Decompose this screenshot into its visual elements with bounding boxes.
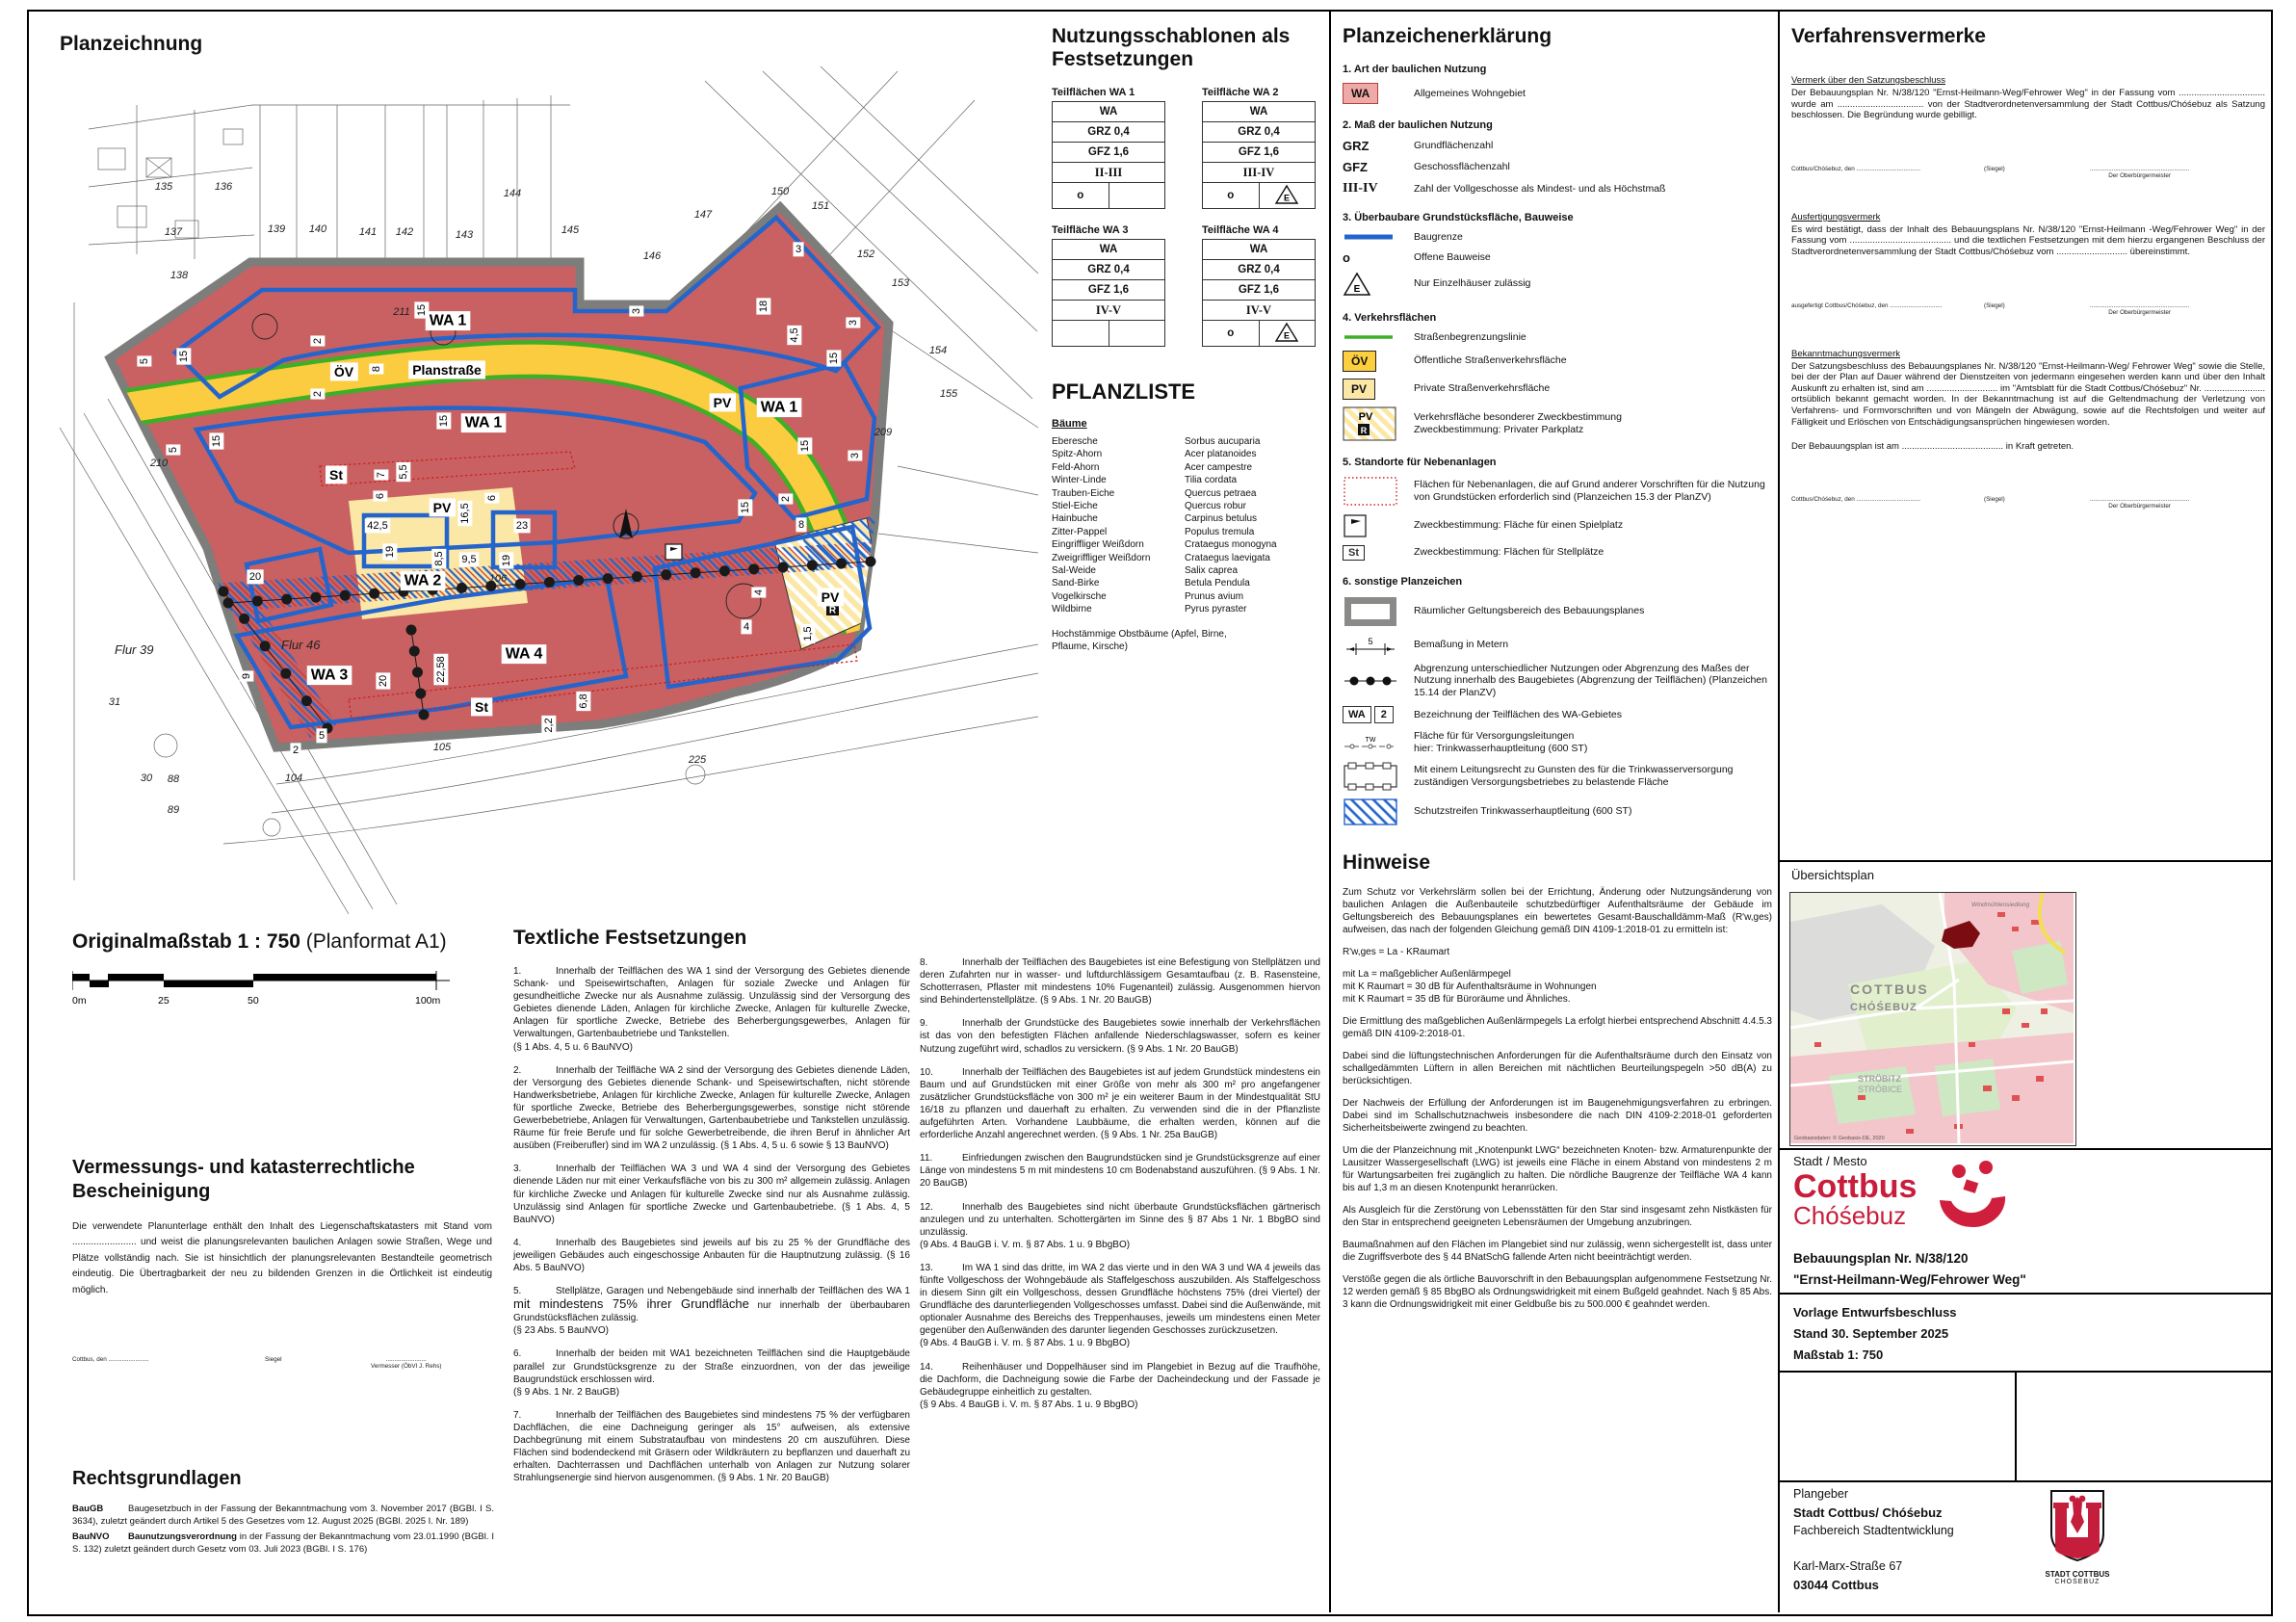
stadt-mesto-label: Stadt / Mesto [1793,1154,1917,1168]
signature-row: ausgefertigt Cottbus/Chóśebuz, den .....… [1791,302,2265,316]
svg-text:2: 2 [780,496,792,502]
schablone-wa3: Teilfläche WA 3WAGRZ 0,4GFZ 1,6IV-V [1052,224,1177,347]
wa-label: WA 1 [757,398,802,417]
verfahrensvermerke-column: Verfahrensvermerke Vermerk über den Satz… [1791,25,2265,542]
green-line-icon [1343,333,1414,341]
red-dotted-rect-icon [1343,476,1414,507]
hinweis-paragraph: mit La = maßgeblicher Außenlärmpegelmit … [1343,968,1772,1006]
tw-line-icon: TW [1343,734,1414,751]
plant-row: Eingriffliger WeißdornCrataegus monogyna [1052,538,1329,551]
svg-text:4: 4 [744,621,749,633]
parcel-number: 144 [504,188,521,199]
svg-text:9: 9 [241,673,252,679]
dimension-label: 6 [373,490,387,501]
svg-text:WA 3: WA 3 [311,667,349,684]
plant-row: WildbirnePyrus pyraster [1052,603,1329,615]
festsetzung-item: 13.Im WA 1 sind das dritte, im WA 2 das … [920,1262,1320,1350]
svg-text:0m: 0m [72,995,87,1007]
verfahren-block: AusfertigungsvermerkEs wird bestätigt, d… [1791,212,2265,316]
svg-text:2: 2 [293,745,299,756]
svg-text:E: E [1284,330,1290,340]
pflanzliste-rows: EberescheSorbus aucupariaSpitz-AhornAcer… [1052,435,1329,616]
wa-chip-icon: WA [1343,83,1414,104]
festsetzung-item: 7.Innerhalb der Teilflächen des Baugebie… [513,1409,910,1485]
wa2-boxes-icon: WA2 [1343,706,1414,723]
parcel-number: 137 [165,226,183,238]
map-city-label: COTTBUS [1850,981,1929,997]
festsetzung-item: 11.Einfriedungen zwischen den Baugrundst… [920,1152,1320,1190]
dimension-label: 7 [374,469,388,480]
nutzungsschablonen-column: Nutzungsschablonen als Festsetzungen Tei… [1052,25,1329,654]
plant-row: Sand-BirkeBetula Pendula [1052,577,1329,589]
vermessung-block: Vermessungs- und katasterrechtliche Besc… [72,1156,492,1402]
spielplatz-icon [665,544,682,560]
svg-text:CHÓŚEBUZ: CHÓŚEBUZ [1850,1001,1918,1013]
svg-text:R: R [1361,426,1368,435]
plant-row: Winter-LindeTilia cordata [1052,474,1329,486]
svg-text:19: 19 [384,546,396,558]
rechtsgrundlagen-title: Rechtsgrundlagen [72,1468,494,1490]
legend-sections: 1. Art der baulichen NutzungWAAllgemeine… [1343,64,1772,826]
spielplatz-icon [1343,513,1414,538]
dimension-label: 15 [826,350,841,366]
svg-text:20: 20 [378,675,389,687]
svg-text:3: 3 [849,453,861,458]
wa-label: WA 1 [461,413,507,432]
svg-text:Planstraße: Planstraße [412,362,482,378]
svg-text:15: 15 [828,353,840,364]
flur-label: Flur 39 [115,642,153,657]
hinweis-paragraph: Um die der Planzeichnung mit „Knotenpunk… [1343,1144,1772,1194]
parcel-number: 150 [771,186,790,197]
area-label: Planstraße [408,360,485,379]
svg-text:WA 2: WA 2 [404,573,442,589]
dimension-label: 15 [414,301,429,318]
dots-line-icon [1343,674,1414,688]
parcel-number: 135 [155,181,173,193]
legend-row: oOffene Bauweise [1343,250,1772,265]
festsetzung-item: 6.Innerhalb der beiden mit WA1 bezeichne… [513,1347,910,1398]
svg-text:5: 5 [319,730,325,742]
divider-h5 [1778,1480,2271,1482]
text-serif-icon: III-IV [1343,181,1414,196]
divider-h4 [1778,1371,2271,1373]
divider-v1 [1329,12,1331,1612]
svg-text:25: 25 [158,995,170,1007]
text-bold-icon: GFZ [1343,160,1414,174]
dim-5-icon: 5 [1343,635,1414,656]
legend-row: PVRVerkehrsfläche besonderer Zweckbestim… [1343,406,1772,441]
svg-text:20: 20 [249,571,261,583]
schablonen-title: Nutzungsschablonen als Festsetzungen [1052,25,1312,71]
parcel-number: 154 [929,345,947,356]
leitungsrecht-icon [1343,762,1414,791]
hinweis-paragraph: Verstöße gegen die als örtliche Bauvorsc… [1343,1273,1772,1311]
svg-text:15: 15 [211,435,222,447]
dimension-label: 20 [247,569,263,584]
svg-text:6: 6 [486,495,498,501]
plant-row: EberescheSorbus aucuparia [1052,435,1329,448]
divider-h3 [1778,1293,2271,1295]
dimension-label: 6,8 [576,692,590,711]
dimension-label: 42,5 [365,518,390,533]
dimension-label: 19 [499,552,513,568]
svg-text:WA 1: WA 1 [465,415,503,432]
legend-row: WA2Bezeichnung der Teilflächen des WA-Ge… [1343,706,1772,723]
svg-text:4,5: 4,5 [789,327,800,342]
dimension-label: 3 [629,305,643,316]
dimension-label: 20 [376,672,390,689]
svg-text:2: 2 [312,391,324,397]
svg-text:WA 1: WA 1 [430,313,467,329]
e-triangle-icon: E [1343,272,1414,297]
legend-column: Planzeichenerklärung 1. Art der bauliche… [1343,25,1772,1321]
svg-text:7: 7 [376,472,387,478]
pflanzliste-title: PFLANZLISTE [1052,379,1329,405]
festsetzung-item: 2.Innerhalb der Teilfläche WA 2 sind der… [513,1064,910,1153]
legend-row: Flächen für Nebenanlagen, die auf Grund … [1343,476,1772,507]
svg-text:15: 15 [740,502,751,513]
dimension-label: 3 [793,242,803,256]
textfest-column-1: 1.Innerhalb der Teilflächen des WA 1 sin… [513,965,910,1495]
dimension-label: 6 [484,492,499,503]
svg-text:STRÓBICE: STRÓBICE [1858,1085,1902,1094]
svg-text:5: 5 [139,358,150,364]
dimension-label: 4 [751,587,766,597]
svg-text:5: 5 [168,447,179,453]
plant-row: Zweigriffliger WeißdornCrataegus laeviga… [1052,552,1329,564]
plan-drawing: R 13513613713813914014114214314414514614… [31,13,1038,917]
svg-text:9,5: 9,5 [461,554,476,565]
oev-chip-icon: ÖV [1343,351,1414,372]
pv-chip-icon: PV [1343,379,1414,400]
pv-hatch-chip-icon: PVR [1343,406,1414,441]
dimension-label: 8 [369,363,383,374]
svg-text:1,5: 1,5 [802,626,814,641]
dimension-label: 19 [382,543,397,560]
rechtsgrundlage-entry: BauGBBaugesetzbuch in der Fassung der Be… [72,1504,494,1528]
parcel-number: 140 [309,223,327,235]
titleblock-plangeber: Plangeber Stadt Cottbus/ Chóśebuz Fachbe… [1793,1485,1954,1594]
svg-text:15: 15 [438,415,450,427]
parcel-number: 142 [396,226,413,238]
parcel-number: 139 [268,223,285,235]
chosebuz-logo-text: Chóśebuz [1793,1203,1917,1228]
parcel-number: 153 [892,277,910,289]
signature-row: Cottbus/Chóśebuz, den ..................… [1791,166,2265,179]
svg-text:23: 23 [516,520,528,532]
festsetzung-item: 4.Innerhalb des Baugebietes sind jeweils… [513,1237,910,1274]
svg-text:3: 3 [848,320,859,326]
schablone-wa4: Teilfläche WA 4WAGRZ 0,4GFZ 1,6IV-VoE [1202,224,1327,347]
plant-row: Feld-AhornAcer campestre [1052,461,1329,474]
legend-section-title: 1. Art der baulichen Nutzung [1343,64,1772,75]
parcel-number: 147 [694,209,713,221]
bplan-number: Bebauungsplan Nr. N/38/120 [1793,1248,2026,1269]
festsetzung-item: 9.Innerhalb der Grundstücke des Baugebie… [920,1017,1320,1055]
svg-text:15: 15 [416,304,428,316]
map-caption: Geobasisdaten: © Geobasis-DE, 2020 [1794,1135,1885,1141]
legend-row: Straßenbegrenzungslinie [1343,331,1772,344]
svg-text:3: 3 [796,244,801,255]
festsetzung-item: 10.Innerhalb der Teilflächen des Baugebi… [920,1066,1320,1142]
svg-text:6: 6 [375,493,386,499]
rechtsgrundlage-entry: BauNVOBaunutzungsverordnung in der Fassu… [72,1531,494,1556]
dimension-label: 15 [738,499,752,515]
svg-text:8,5: 8,5 [433,551,445,565]
hinweis-paragraph: Der Nachweis der Erfüllung der Anforderu… [1343,1097,1772,1135]
hinweis-paragraph: Die Ermittlung des maßgeblichen Außenlär… [1343,1015,1772,1040]
pflanzliste-note: Hochstämmige Obstbäume (Apfel, Birne, Pf… [1052,628,1264,654]
dimension-label: 2 [778,493,793,504]
titleblock-plan-number: Bebauungsplan Nr. N/38/120 "Ernst-Heilma… [1793,1248,2026,1291]
area-label: PV [818,588,844,606]
parcel-number: 30 [141,772,153,784]
legend-row: Mit einem Leitungsrecht zu Gunsten des f… [1343,762,1772,791]
dimension-label: 9,5 [459,552,479,566]
dimension-label: 2 [310,388,325,399]
vorlage-label: Vorlage Entwurfsbeschluss [1793,1302,1957,1323]
legend-row: Räumlicher Geltungsbereich des Bebauungs… [1343,595,1772,628]
rechtsgrundlagen-block: Rechtsgrundlagen BauGBBaugesetzbuch in d… [72,1468,494,1559]
dimension-label: 5 [166,444,180,455]
svg-text:2,2: 2,2 [543,718,555,732]
plant-row: VogelkirschePrunus avium [1052,590,1329,603]
svg-text:19: 19 [501,555,512,566]
hinweise-paragraphs: Zum Schutz vor Verkehrslärm sollen bei d… [1343,886,1772,1311]
svg-text:St: St [329,467,343,483]
coat-of-arms: STADT COTTBUS CHÓŚEBUZ [2034,1489,2121,1585]
dimension-label: 22,58 [433,654,448,686]
area-label: PV [710,393,736,411]
legend-row: GFZGeschossflächenzahl [1343,160,1772,174]
st-box-icon: St [1343,545,1414,561]
svg-text:18: 18 [758,301,770,312]
area-label: PV [430,498,456,516]
flur-label: Flur 46 [281,638,321,652]
legend-row: WAAllgemeines Wohngebiet [1343,83,1772,104]
map-district-label: STRÖBITZ [1858,1074,1901,1084]
uebersichtsplan-label: Übersichtsplan [1791,868,1874,882]
vermessung-text: Die verwendete Planunterlage enthält den… [72,1219,492,1298]
svg-text:PV: PV [714,395,732,410]
scale-bar: 0m 25 50 100m [72,963,486,1011]
festsetzung-item: 14.Reihenhäuser und Doppelhäuser sind im… [920,1361,1320,1411]
parcel-number: 104 [285,772,302,784]
area-label: St [326,465,347,484]
titleblock-status: Vorlage Entwurfsbeschluss Stand 30. Sept… [1793,1302,1957,1366]
dimension-label: 2,2 [541,716,556,735]
verfahren-block: BekanntmachungsvermerkDer Satzungsbeschl… [1791,349,2265,510]
dimension-label: 2 [290,743,300,757]
parcel-number: 106 [489,573,508,585]
parcel-number: 145 [561,224,580,236]
verfahren-block: Vermerk über den SatzungsbeschlussDer Be… [1791,75,2265,179]
festsetzung-item: 3.Innerhalb der Teilflächen WA 3 und WA … [513,1163,910,1225]
festsetzung-item: 12.Innerhalb des Baugebietes sind nicht … [920,1201,1320,1251]
uebersichtsplan-map: COTTBUS CHÓŚEBUZ STRÖBITZ STRÓBICE Windm… [1789,892,2076,1146]
parcel-number: 31 [109,696,120,708]
massstab-label: Maßstab 1: 750 [1793,1345,1957,1366]
svg-text:6,8: 6,8 [578,693,589,708]
plant-row: Stiel-EicheQuercus robur [1052,500,1329,512]
wa-label: WA 2 [401,571,446,590]
dimension-label: 4,5 [787,326,801,345]
area-label: St [471,697,492,716]
wa-label: WA 4 [502,644,547,664]
hinweis-paragraph: Baumaßnahmen auf den Flächen im Plangebi… [1343,1239,1772,1264]
text-bold-icon: GRZ [1343,139,1414,153]
textfest-title: Textliche Festsetzungen [513,927,746,950]
festsetzung-item: 1.Innerhalb der Teilflächen des WA 1 sin… [513,965,910,1054]
schablone-wa1: Teilflächen WA 1WAGRZ 0,4GFZ 1,6II-IIIo [1052,87,1177,209]
parcel-number: 89 [168,804,179,816]
festsetzung-item: 8.Innerhalb der Teilflächen des Baugebie… [920,956,1320,1007]
schablone-wa2: Teilfläche WA 2WAGRZ 0,4GFZ 1,6III-IVoE [1202,87,1327,209]
svg-text:8: 8 [371,366,382,372]
svg-text:50: 50 [248,995,259,1007]
svg-text:PV: PV [1359,411,1373,423]
parcel-number: 136 [215,181,233,193]
plant-row: Spitz-AhornAcer platanoides [1052,448,1329,460]
svg-text:15: 15 [799,440,811,452]
svg-text:5: 5 [1368,637,1372,646]
area-label: ÖV [330,362,358,380]
legend-row: StZweckbestimmung: Flächen für Stellplät… [1343,545,1772,561]
vermessung-signature-row: Cottbus, den ........................ Si… [72,1356,492,1370]
dimension-label: 15 [436,412,451,429]
textfest-column-2: 8.Innerhalb der Teilflächen des Baugebie… [920,956,1320,1422]
svg-text:3: 3 [631,308,642,314]
pflanzliste-subtitle: Bäume [1052,418,1329,430]
wa-label: WA 3 [307,666,352,685]
vermessung-title: Vermessungs- und katasterrechtliche Besc… [72,1156,492,1204]
hinweis-paragraph: Zum Schutz vor Verkehrslärm sollen bei d… [1343,886,1772,936]
legend-row: Abgrenzung unterschiedlicher Nutzungen o… [1343,663,1772,699]
festsetzung-item: 5.Stellplätze, Garagen und Nebengebäude … [513,1285,910,1337]
verfahren-title: Verfahrensvermerke [1791,25,2265,48]
blue-hatch-icon [1343,798,1414,826]
parcel-number: 105 [433,742,452,753]
parcel-number: 152 [857,249,874,260]
stand-date: Stand 30. September 2025 [1793,1323,1957,1345]
plant-row: Zitter-PappelPopulus tremula [1052,526,1329,538]
verfahren-blocks: Vermerk über den SatzungsbeschlussDer Be… [1791,75,2265,510]
cottbus-logo-text: Cottbus [1793,1170,1917,1203]
legend-section-title: 3. Überbaubare Grundstücksfläche, Bauwei… [1343,212,1772,223]
dimension-label: 5 [137,355,151,366]
hinweis-paragraph: Als Ausgleich für die Zerstörung von Leb… [1343,1204,1772,1229]
parcel-number: 155 [940,388,958,400]
geltung-rect-icon [1343,595,1414,628]
svg-text:15: 15 [178,351,190,362]
hinweis-paragraph: Dabei sind die lüftungstechnischen Anfor… [1343,1050,1772,1087]
dimension-label: 8,5 [431,549,446,568]
dimension-label: 3 [848,450,862,460]
dimension-label: 16,5 [457,501,472,526]
svg-text:St: St [475,699,488,715]
legend-row: Schutzstreifen Trinkwasserhauptleitung (… [1343,798,1772,826]
dimension-label: 15 [176,348,191,364]
divider-h2 [1778,1148,2271,1150]
legend-row: Zweckbestimmung: Fläche für einen Spielp… [1343,513,1772,538]
parcel-number: 88 [168,773,180,785]
svg-text:4: 4 [753,589,765,595]
svg-text:16,5: 16,5 [459,503,471,523]
legend-row: Baugrenze [1343,231,1772,244]
legend-section-title: 5. Standorte für Nebenanlagen [1343,457,1772,468]
svg-text:R: R [829,606,837,616]
hinweise-title: Hinweise [1343,851,1772,875]
svg-text:PV: PV [433,500,452,515]
parcel-number: 143 [456,229,474,241]
dimension-label: 15 [209,432,223,449]
dimension-label: 15 [797,437,812,454]
legend-row: PVPrivate Straßenverkehrsfläche [1343,379,1772,400]
schablonen-tables: Teilflächen WA 1WAGRZ 0,4GFZ 1,6II-IIIoT… [1052,87,1329,347]
svg-text:100m: 100m [415,995,441,1007]
legend-row: TWFläche für für Versorgungsleitungenhie… [1343,730,1772,755]
parcel-number: 225 [688,754,707,766]
svg-text:E: E [1354,284,1361,295]
legend-section-title: 6. sonstige Planzeichen [1343,576,1772,588]
massstab-heading: Originalmaßstab 1 : 750 [72,930,300,953]
parcel-number: 141 [359,226,377,238]
dimension-label: 3 [846,317,860,327]
dimension-label: 4 [741,619,751,634]
plant-row: Trauben-EicheQuercus petraea [1052,487,1329,500]
parcel-number: 146 [643,250,662,262]
svg-text:ÖV: ÖV [334,364,354,379]
parcel-number: 210 [149,458,169,469]
massstab-block: Originalmaßstab 1 : 750 (Planformat A1) … [72,930,486,1016]
signature-row: Cottbus/Chóśebuz, den ..................… [1791,496,2265,510]
legend-section-title: 2. Maß der baulichen Nutzung [1343,119,1772,131]
svg-text:2: 2 [312,338,324,344]
legend-row: ENur Einzelhäuser zulässig [1343,272,1772,297]
bplan-name: "Ernst-Heilmann-Weg/Fehrower Weg" [1793,1269,2026,1291]
svg-text:PV: PV [822,589,840,605]
dimension-label: 23 [513,518,530,533]
parcel-number: 138 [170,270,189,281]
legend-row: GRZGrundflächenzahl [1343,139,1772,153]
plant-row: HainbucheCarpinus betulus [1052,512,1329,525]
legend-row: III-IVZahl der Vollgeschosse als Mindest… [1343,181,1772,196]
svg-text:WA 1: WA 1 [761,400,798,416]
divider-h1 [1778,860,2271,862]
svg-text:22,58: 22,58 [435,656,447,683]
city-logo-block: Stadt / Mesto Cottbus Chóśebuz [1793,1154,1917,1228]
dimension-label: 8 [796,517,806,532]
svg-text:WA 4: WA 4 [506,646,543,663]
blue-line-icon [1343,232,1414,242]
dimension-label: 18 [756,298,770,314]
parcel-number: 151 [812,200,829,212]
dimension-label: 5,5 [396,462,410,482]
divider-v3 [2015,1371,2017,1480]
legend-title: Planzeichenerklärung [1343,25,1772,48]
parcel-number: 209 [874,427,892,438]
plant-row: Sal-WeideSalix caprea [1052,564,1329,577]
dimension-label: 9 [239,670,253,681]
svg-text:42,5: 42,5 [367,520,387,532]
map-small-label: Windmühlensiedlung [1971,902,2030,908]
dimension-label: 2 [310,335,325,346]
svg-text:TW: TW [1366,737,1376,744]
legend-section-title: 4. Verkehrsflächen [1343,312,1772,324]
dimension-label: 5 [316,728,326,743]
svg-text:5,5: 5,5 [398,464,409,479]
